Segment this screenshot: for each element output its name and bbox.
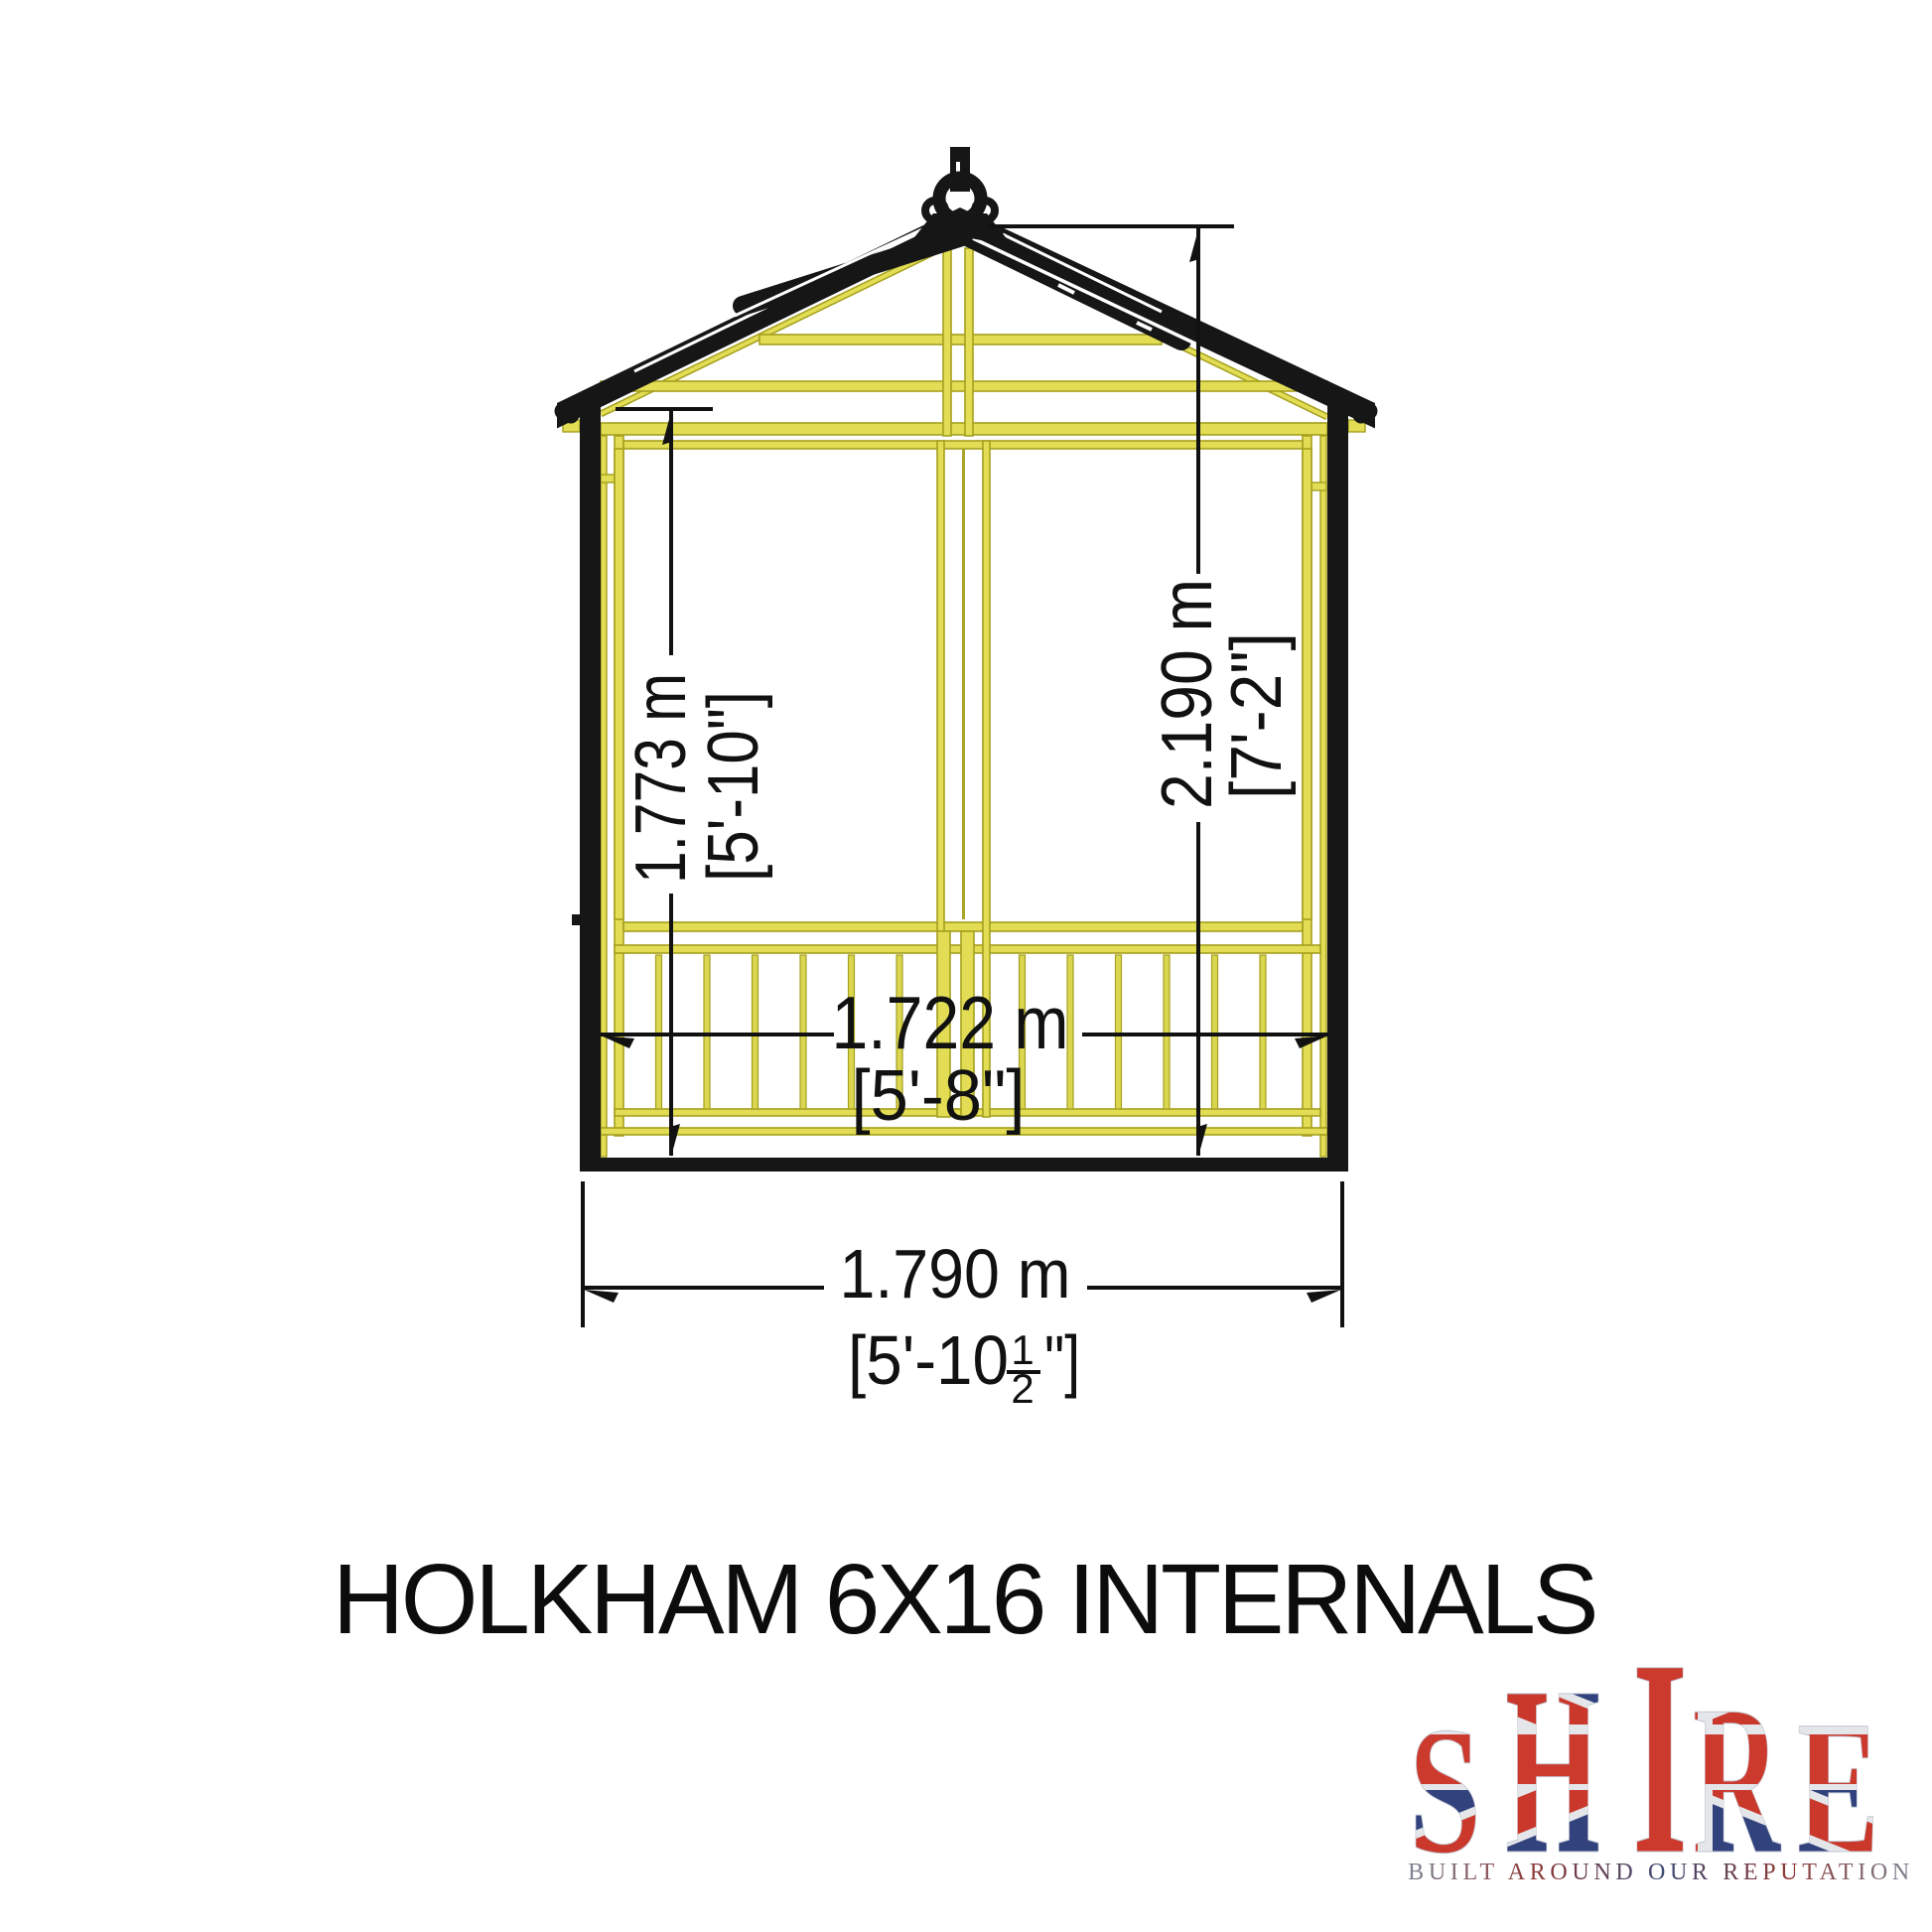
svg-text:BUILT AROUND OUR REPUTATION: BUILT AROUND OUR REPUTATION <box>1408 1860 1914 1885</box>
svg-text:2.190 m: 2.190 m <box>1148 579 1227 809</box>
svg-text:[5'-10: [5'-10 <box>848 1321 1009 1399</box>
svg-text:[5'-8"]: [5'-8"] <box>852 1056 1026 1136</box>
svg-text:HOLKHAM 6X16 INTERNALS: HOLKHAM 6X16 INTERNALS <box>333 1544 1595 1655</box>
svg-text:1.773 m: 1.773 m <box>621 673 701 884</box>
svg-text:1.790 m: 1.790 m <box>840 1235 1071 1312</box>
svg-text:[5'-10"]: [5'-10"] <box>694 691 773 882</box>
svg-text:1.722 m: 1.722 m <box>832 981 1069 1064</box>
svg-text:2: 2 <box>1011 1365 1034 1412</box>
svg-text:[7'-2"]: [7'-2"] <box>1217 632 1297 799</box>
svg-text:"]: "] <box>1044 1321 1080 1399</box>
